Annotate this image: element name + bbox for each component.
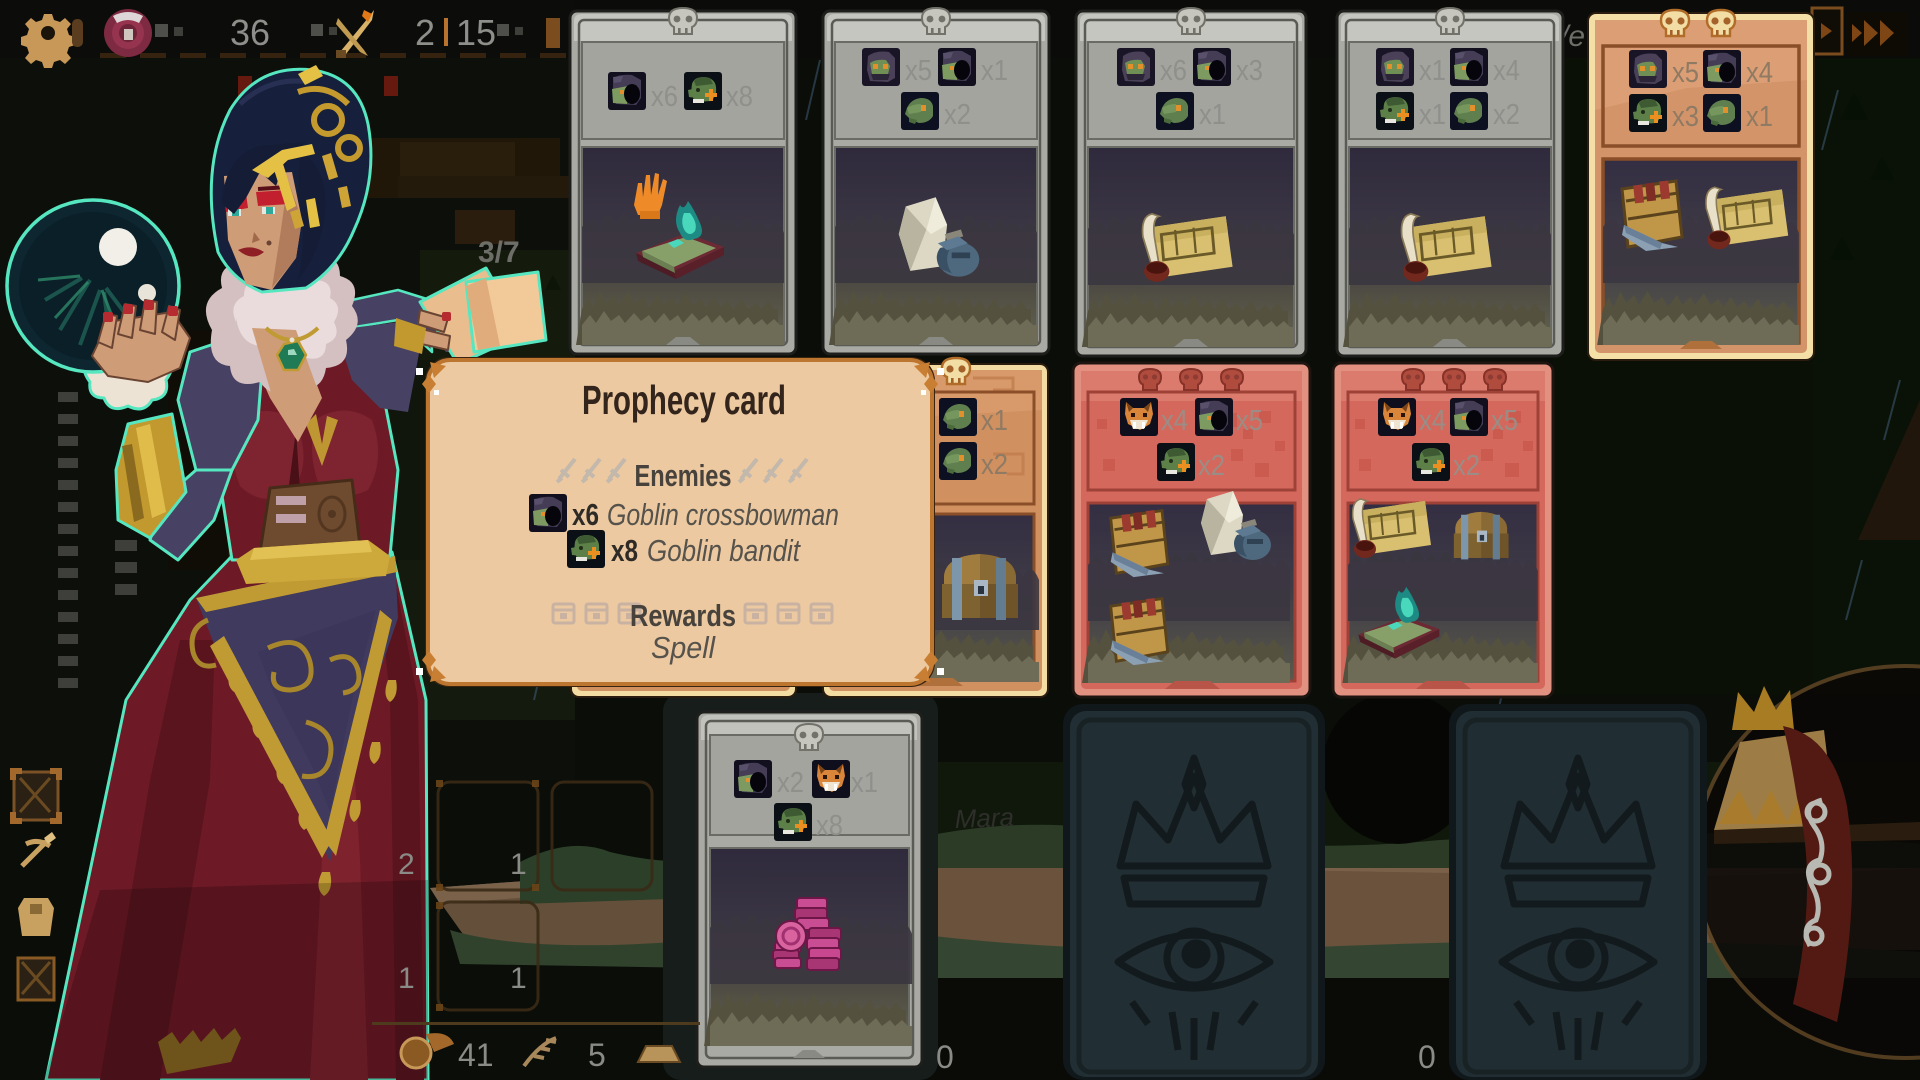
svg-text:x2: x2 <box>1198 450 1225 482</box>
svg-text:3/7: 3/7 <box>478 236 520 269</box>
svg-text:x5: x5 <box>1672 57 1699 89</box>
svg-text:x4: x4 <box>1419 405 1446 437</box>
svg-text:x8: x8 <box>816 810 843 842</box>
svg-text:x2: x2 <box>944 99 971 131</box>
svg-text:x4: x4 <box>1161 405 1188 437</box>
svg-text:x1: x1 <box>981 55 1008 87</box>
svg-text:41: 41 <box>458 1037 494 1073</box>
svg-text:x2: x2 <box>1453 450 1480 482</box>
svg-text:1: 1 <box>510 962 527 995</box>
svg-text:x1: x1 <box>851 767 878 799</box>
svg-text:x2: x2 <box>1493 99 1520 131</box>
svg-text:Enemies: Enemies <box>635 458 732 493</box>
svg-text:0: 0 <box>1418 1039 1436 1075</box>
svg-text:x1: x1 <box>981 405 1008 437</box>
svg-text:x4: x4 <box>1746 57 1773 89</box>
svg-text:x5: x5 <box>1236 405 1263 437</box>
svg-text:Rewards: Rewards <box>630 598 736 633</box>
svg-text:x5: x5 <box>1491 405 1518 437</box>
svg-text:x6: x6 <box>572 497 599 532</box>
svg-text:Goblin bandit: Goblin bandit <box>647 533 801 568</box>
svg-text:2: 2 <box>415 12 435 53</box>
svg-text:x8: x8 <box>726 81 753 113</box>
svg-text:2: 2 <box>398 848 415 881</box>
svg-text:x6: x6 <box>1160 55 1187 87</box>
svg-text:0: 0 <box>936 1039 954 1075</box>
svg-text:Prophecy card: Prophecy card <box>582 377 786 423</box>
svg-text:Spell: Spell <box>651 630 716 665</box>
svg-text:1: 1 <box>398 962 415 995</box>
svg-text:x4: x4 <box>1493 55 1520 87</box>
svg-text:x5: x5 <box>905 55 932 87</box>
svg-text:15: 15 <box>456 12 496 53</box>
svg-text:5: 5 <box>588 1037 606 1073</box>
svg-text:1: 1 <box>510 848 527 881</box>
svg-text:x1: x1 <box>1199 99 1226 131</box>
svg-text:x6: x6 <box>651 81 678 113</box>
svg-text:Goblin crossbowman: Goblin crossbowman <box>607 497 839 532</box>
svg-text:Mara: Mara <box>954 802 1014 834</box>
svg-text:x3: x3 <box>1672 101 1699 133</box>
svg-text:36: 36 <box>230 12 270 53</box>
svg-text:x8: x8 <box>611 533 638 568</box>
svg-text:x1: x1 <box>1746 101 1773 133</box>
svg-text:x3: x3 <box>1236 55 1263 87</box>
svg-text:x1: x1 <box>1419 55 1446 87</box>
svg-text:x2: x2 <box>777 767 804 799</box>
svg-text:x2: x2 <box>981 449 1008 481</box>
svg-text:x1: x1 <box>1419 99 1446 131</box>
